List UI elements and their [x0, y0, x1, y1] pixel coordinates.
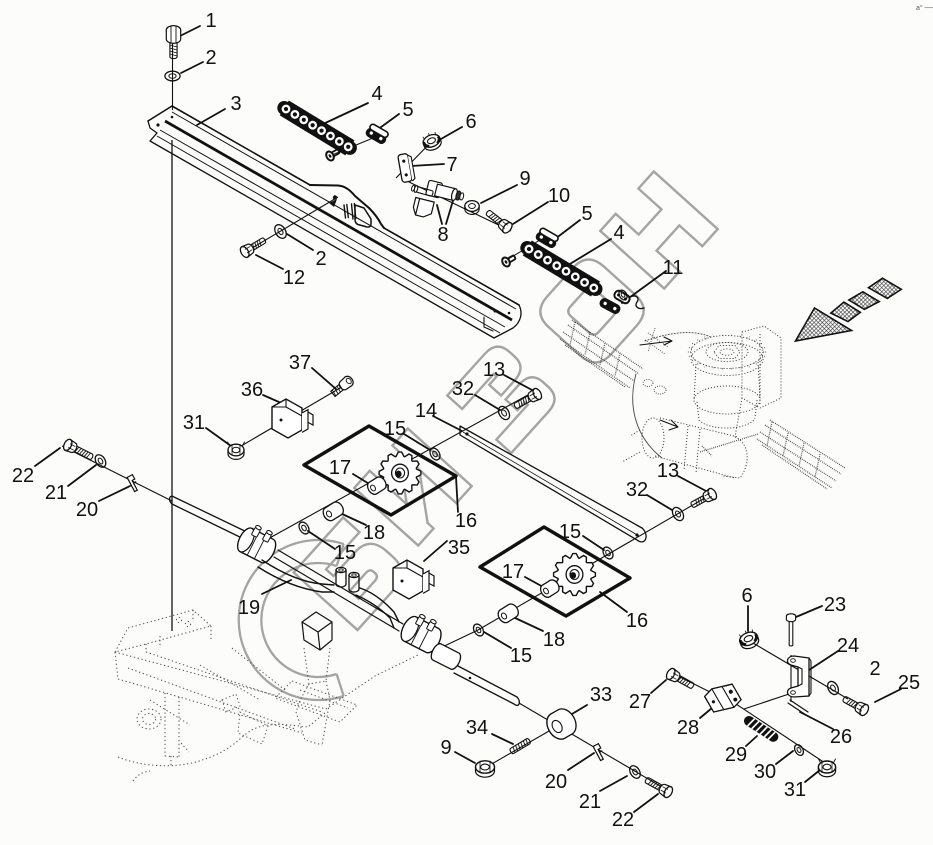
- svg-text:21: 21: [579, 791, 601, 813]
- svg-text:4: 4: [371, 83, 382, 105]
- svg-text:15: 15: [384, 418, 406, 440]
- svg-text:27: 27: [629, 691, 651, 713]
- svg-text:6: 6: [741, 585, 752, 607]
- svg-text:15: 15: [334, 542, 356, 564]
- svg-text:9: 9: [519, 168, 530, 190]
- svg-text:34: 34: [466, 717, 488, 739]
- svg-text:9: 9: [440, 737, 451, 759]
- svg-text:17: 17: [502, 561, 524, 583]
- svg-text:16: 16: [626, 610, 648, 632]
- svg-text:28: 28: [677, 717, 699, 739]
- svg-text:37: 37: [289, 352, 311, 374]
- svg-text:33: 33: [590, 684, 612, 706]
- svg-text:22: 22: [12, 465, 34, 487]
- svg-text:13: 13: [483, 359, 505, 381]
- svg-text:32: 32: [452, 378, 474, 400]
- svg-text:16: 16: [455, 510, 477, 532]
- svg-text:25: 25: [898, 672, 920, 694]
- svg-text:1: 1: [205, 10, 216, 32]
- svg-text:24: 24: [837, 635, 859, 657]
- svg-text:17: 17: [329, 457, 351, 479]
- svg-text:19: 19: [238, 597, 260, 619]
- svg-text:a° ───: a° ───: [916, 4, 933, 12]
- svg-text:31: 31: [183, 412, 205, 434]
- svg-text:15: 15: [510, 645, 532, 667]
- svg-text:18: 18: [363, 522, 385, 544]
- svg-text:20: 20: [76, 499, 98, 521]
- svg-text:12: 12: [283, 267, 305, 289]
- svg-text:14: 14: [415, 400, 437, 422]
- svg-text:22: 22: [612, 809, 634, 831]
- svg-text:11: 11: [663, 257, 684, 279]
- svg-text:21: 21: [45, 482, 67, 504]
- svg-text:15: 15: [559, 521, 581, 543]
- svg-text:10: 10: [548, 185, 570, 207]
- svg-text:29: 29: [725, 744, 747, 766]
- svg-text:31: 31: [784, 779, 806, 801]
- svg-text:6: 6: [465, 111, 476, 133]
- svg-text:32: 32: [626, 479, 648, 501]
- svg-text:30: 30: [754, 761, 776, 783]
- svg-text:4: 4: [613, 222, 624, 244]
- svg-text:35: 35: [448, 537, 470, 559]
- svg-text:23: 23: [824, 594, 846, 616]
- svg-text:2: 2: [315, 248, 326, 270]
- svg-text:20: 20: [545, 771, 567, 793]
- svg-text:13: 13: [657, 460, 679, 482]
- svg-text:36: 36: [241, 379, 263, 401]
- svg-text:26: 26: [830, 726, 852, 748]
- svg-text:5: 5: [402, 99, 413, 121]
- svg-text:3: 3: [230, 93, 241, 115]
- svg-text:8: 8: [437, 224, 448, 246]
- svg-text:2: 2: [205, 47, 216, 69]
- svg-text:7: 7: [446, 154, 457, 176]
- svg-text:2: 2: [869, 658, 880, 680]
- svg-text:18: 18: [543, 629, 565, 651]
- svg-text:5: 5: [581, 203, 592, 225]
